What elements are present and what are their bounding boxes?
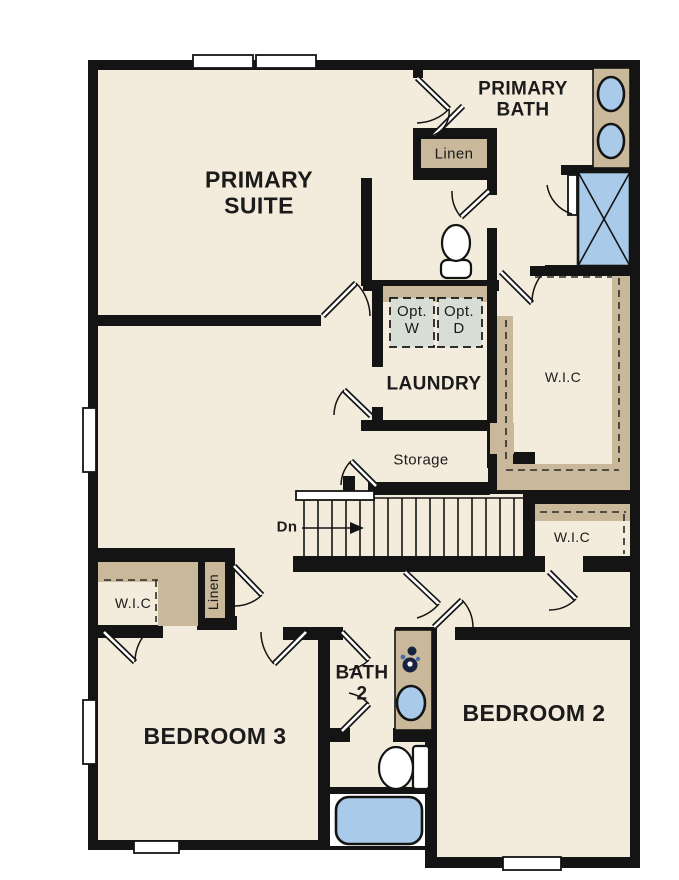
- room-label-storage: Storage: [393, 453, 448, 470]
- room-label-wic-hall: W.I.C: [554, 530, 590, 546]
- room-label-opt-washer: Opt. W: [397, 304, 427, 338]
- stairs-down-label: Dn: [277, 520, 298, 537]
- room-label-linen-upper: Linen: [435, 147, 474, 164]
- window: [503, 857, 561, 870]
- sink: [598, 77, 624, 111]
- floor-plan: PRIMARY SUITE PRIMARY BATH Linen Opt. W …: [0, 0, 679, 880]
- room-label-laundry: LAUNDRY: [387, 373, 482, 394]
- room-label-bedroom2: BEDROOM 2: [463, 701, 606, 727]
- room-label-bedroom3: BEDROOM 3: [144, 724, 287, 750]
- room-label-wic-bedroom3: W.I.C: [115, 596, 151, 612]
- toilet: [441, 225, 471, 278]
- window: [193, 55, 253, 68]
- window: [83, 408, 96, 472]
- bathtub: [330, 794, 425, 846]
- toilet: [379, 746, 429, 789]
- window: [134, 841, 179, 853]
- room-label-wic-primary: W.I.C: [545, 370, 581, 386]
- shower: [578, 172, 630, 266]
- room-label-opt-dryer: Opt. D: [444, 304, 474, 338]
- room-label-bath2: BATH 2: [336, 663, 389, 706]
- window: [83, 700, 96, 764]
- window: [256, 55, 316, 68]
- floor-plan-drawing: [0, 0, 679, 880]
- room-label-linen-lower: Linen: [206, 574, 222, 610]
- sink: [598, 124, 624, 158]
- room-label-primary-suite: PRIMARY SUITE: [205, 167, 313, 219]
- stair-handrail: [296, 491, 374, 500]
- sink: [397, 686, 425, 720]
- room-label-primary-bath: PRIMARY BATH: [478, 79, 568, 122]
